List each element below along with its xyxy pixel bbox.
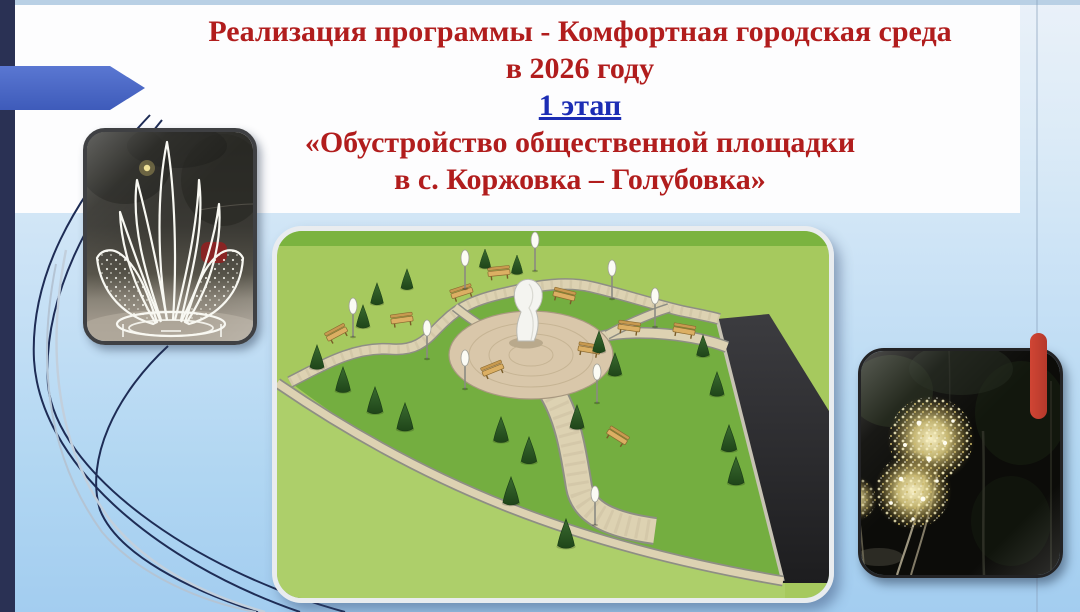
title-block: Реализация программы - Комфортная городс…: [140, 13, 1020, 198]
park-illustration: [277, 231, 829, 598]
stage-heading: 1 этап: [140, 87, 1020, 124]
title-line-2: в 2026 году: [140, 50, 1020, 87]
slide: Реализация программы - Комфортная городс…: [0, 0, 1080, 612]
title-line-1: Реализация программы - Комфортная городс…: [140, 13, 1020, 50]
red-marker-bar: [1030, 333, 1047, 419]
subtitle-line-1: «Обустройство общественной площадки: [140, 124, 1020, 161]
arrow-icon: [0, 66, 146, 111]
lotus-photo: [83, 128, 257, 345]
park-render-photo: [272, 226, 834, 603]
subtitle-line-2: в с. Коржовка – Голубовка»: [140, 161, 1020, 198]
lotus-illustration: [87, 132, 253, 341]
